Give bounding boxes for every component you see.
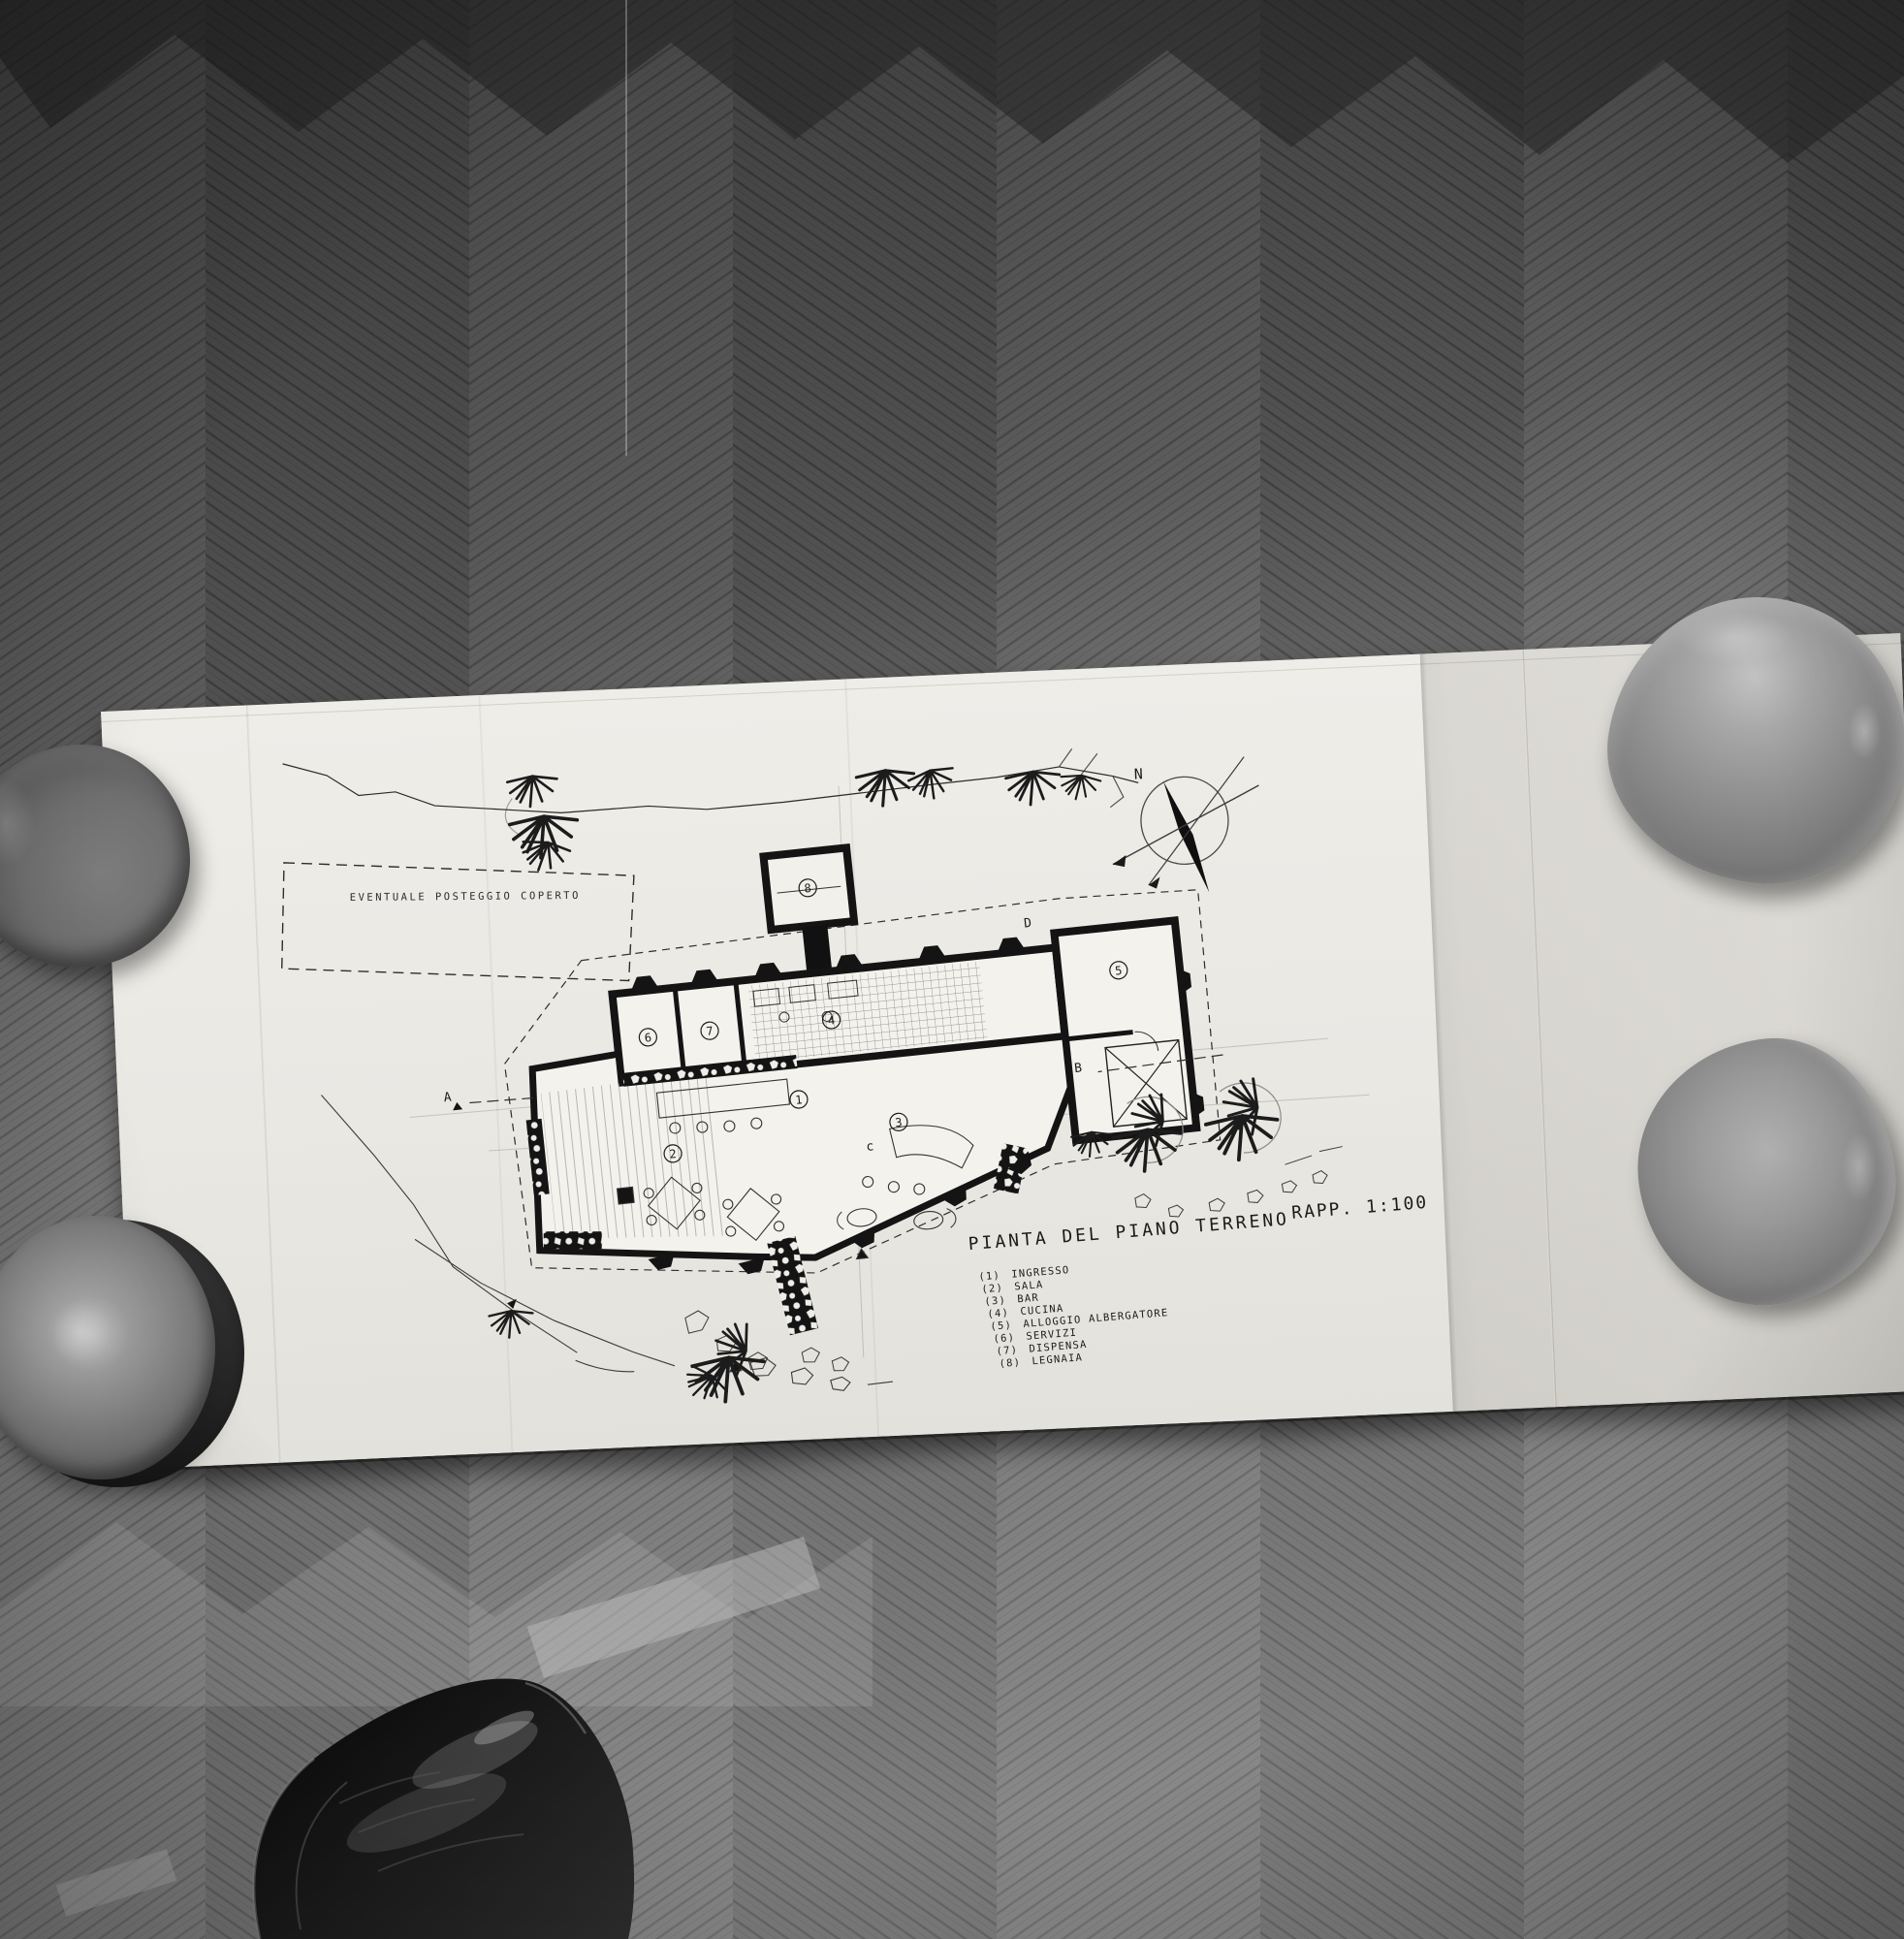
svg-text:8: 8 (804, 881, 812, 896)
section-marker-d: D (1024, 916, 1033, 932)
plan-title: PIANTA DEL PIANO TERRENO (968, 1209, 1290, 1255)
svg-text:5: 5 (1115, 964, 1124, 978)
svg-text:(7): (7) (996, 1344, 1018, 1357)
film-scratch (625, 0, 627, 456)
svg-text:7: 7 (706, 1024, 714, 1038)
svg-text:(8): (8) (999, 1356, 1021, 1370)
paperweight-plate-top-right (1609, 597, 1904, 882)
plan-scale: RAPP. 1:100 (1291, 1192, 1429, 1224)
svg-text:(2): (2) (981, 1282, 1003, 1295)
paperweight-plate-bottom-left (0, 1210, 248, 1491)
svg-text:2: 2 (669, 1147, 678, 1161)
section-marker-c: c (866, 1139, 874, 1155)
compass-north-label: N (1133, 765, 1143, 782)
svg-text:c: c (866, 1139, 874, 1155)
compass-rose: N (1108, 756, 1263, 897)
svg-text:6: 6 (644, 1031, 652, 1045)
svg-text:D: D (1024, 916, 1033, 932)
svg-text:(5): (5) (990, 1319, 1012, 1333)
svg-text:1: 1 (795, 1093, 804, 1107)
photo-stage: N EVENTUALE POSTEGGIO COPERTO (0, 0, 1904, 1939)
svg-text:3: 3 (895, 1115, 904, 1129)
plan-title-block: PIANTA DEL PIANO TERRENO RAPP. 1:100 (1)… (968, 1192, 1439, 1372)
svg-text:(3): (3) (984, 1294, 1006, 1308)
svg-text:A: A (443, 1090, 453, 1105)
wing-lodging (1054, 919, 1206, 1140)
shoe-toe (184, 1638, 688, 1939)
svg-text:(1): (1) (978, 1270, 1000, 1284)
svg-text:SALA: SALA (1014, 1279, 1044, 1292)
paperweight-plate-top-left (0, 745, 190, 968)
stone-wall (544, 1231, 602, 1249)
terrain-contour-top (283, 726, 1140, 844)
svg-text:4: 4 (827, 1013, 836, 1028)
paperweight-plate-right (1638, 1039, 1894, 1305)
parking-label: EVENTUALE POSTEGGIO COPERTO (350, 890, 581, 904)
plate-body (0, 745, 190, 968)
section-marker-a: A (443, 1081, 536, 1111)
svg-text:(6): (6) (993, 1332, 1015, 1346)
svg-text:INGRESSO: INGRESSO (1011, 1264, 1070, 1281)
legend: (1)INGRESSO (2)SALA (3)BAR (4)CUCINA (5)… (978, 1256, 1172, 1371)
svg-text:BAR: BAR (1017, 1292, 1039, 1306)
svg-text:(4): (4) (987, 1307, 1009, 1320)
parking-outline: EVENTUALE POSTEGGIO COPERTO (277, 847, 639, 996)
